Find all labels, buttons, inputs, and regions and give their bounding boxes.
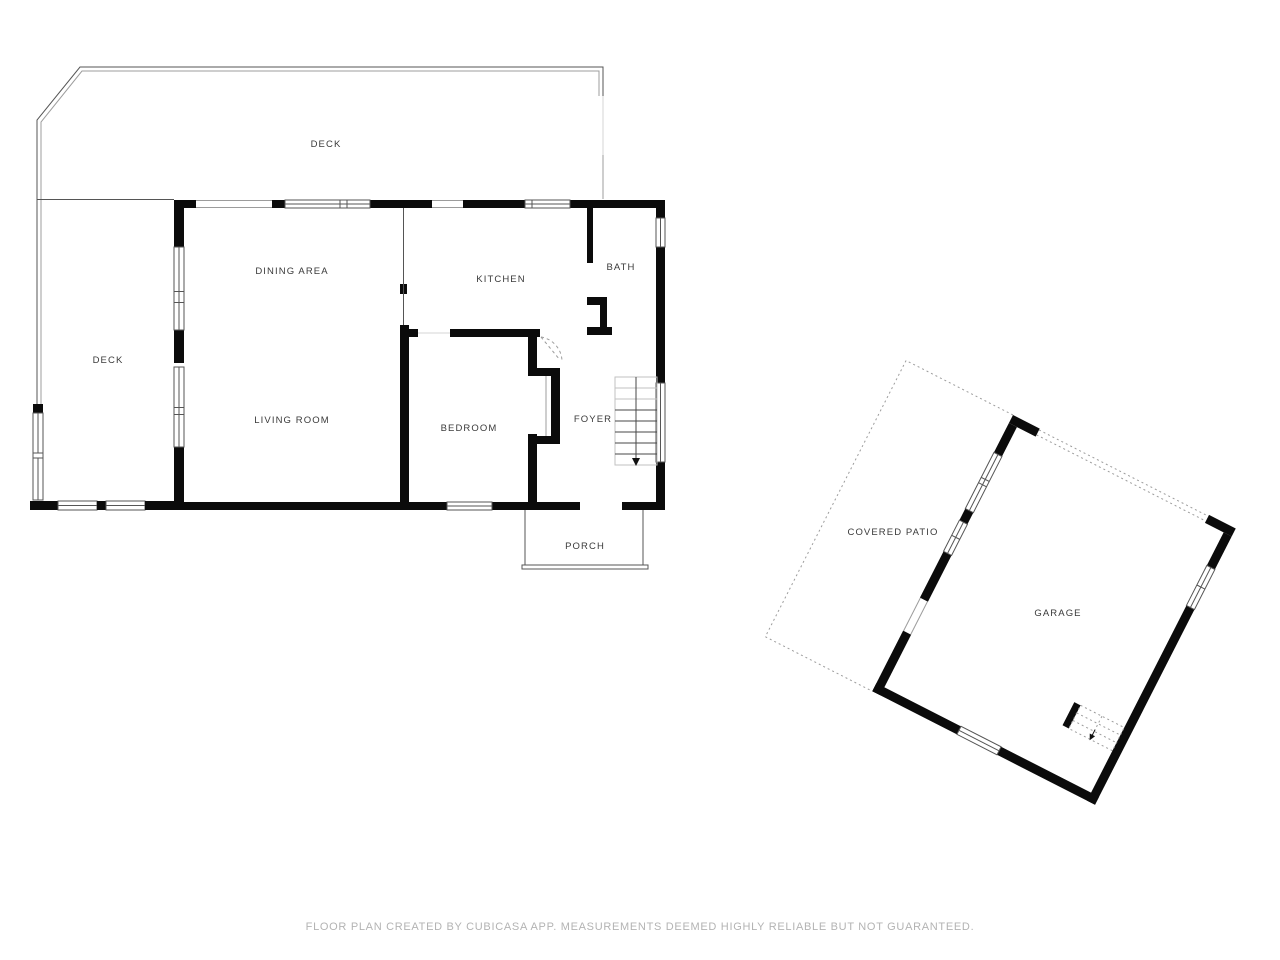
room-label-deck-left: DECK xyxy=(93,355,124,366)
wall-kitchen-bath xyxy=(587,208,593,263)
wall-segment xyxy=(656,247,665,383)
patio-edge xyxy=(765,361,1013,692)
window-garage-left-lower xyxy=(944,520,968,555)
patio-door-opening xyxy=(904,598,928,635)
window-garage-left-upper xyxy=(965,452,1002,512)
window-kitchen-top xyxy=(525,200,570,208)
foyer-stairs xyxy=(615,377,657,466)
deck-edge xyxy=(37,67,603,200)
wall-segment xyxy=(997,747,1099,805)
wall-segment xyxy=(570,200,665,208)
floor-plan-page: DECK DECK DINING AREA KITCHEN BATH LIVIN… xyxy=(0,0,1280,960)
wall-segment xyxy=(174,200,196,208)
deck-railing-left xyxy=(33,413,43,500)
wall-segment xyxy=(272,200,285,208)
wall-kitchen-bedroom xyxy=(450,329,540,337)
closet-wall xyxy=(528,436,560,444)
deck-top-outline xyxy=(37,67,603,200)
house-openings xyxy=(196,201,562,437)
wall-segment xyxy=(174,208,184,247)
window-garage-bottom xyxy=(957,726,1001,754)
window-bedroom-bottom xyxy=(447,502,492,510)
wall-segment xyxy=(174,330,184,363)
room-label-porch: PORCH xyxy=(565,541,605,552)
floor-plan-canvas: DECK DECK DINING AREA KITCHEN BATH LIVIN… xyxy=(0,0,1280,960)
main-house-walls xyxy=(174,200,665,510)
wall-segment xyxy=(463,200,525,208)
room-label-dining-area: DINING AREA xyxy=(255,266,328,277)
wall-segment xyxy=(920,551,952,601)
deck-post xyxy=(33,404,43,413)
room-label-living-room: LIVING ROOM xyxy=(254,415,329,426)
wall-stub xyxy=(409,329,418,337)
closet-wall xyxy=(551,368,560,444)
door-swing xyxy=(541,337,562,362)
porch-edge xyxy=(525,510,643,565)
porch-outline xyxy=(522,510,648,569)
garage-door-opening xyxy=(1037,430,1209,521)
room-label-covered-patio: COVERED PATIO xyxy=(847,527,938,538)
wall-segment xyxy=(1205,515,1236,537)
wall-segment xyxy=(492,502,580,510)
room-label-bedroom: BEDROOM xyxy=(441,423,498,434)
covered-patio-outline xyxy=(765,361,1013,692)
wall-segment xyxy=(872,683,961,734)
porch-step xyxy=(522,565,648,569)
window-dining-top xyxy=(285,200,370,208)
window-garage-right xyxy=(1186,565,1214,609)
wall-segment xyxy=(174,502,447,510)
room-label-deck-top: DECK xyxy=(311,139,342,150)
footer-disclaimer: FLOOR PLAN CREATED BY CUBICASA APP. MEAS… xyxy=(306,921,975,933)
room-label-garage: GARAGE xyxy=(1034,608,1081,619)
wall-segment xyxy=(1207,532,1232,569)
stair-tread xyxy=(1073,720,1117,742)
wall-segment xyxy=(1087,605,1194,804)
deck-edge-inner xyxy=(41,71,599,200)
room-label-foyer: FOYER xyxy=(574,414,612,425)
room-label-bath: BATH xyxy=(606,262,635,273)
window-dining-left xyxy=(174,247,184,330)
door-swing-leaf xyxy=(541,337,560,360)
wall-bedroom-right xyxy=(528,330,537,373)
wall-bath-bottom xyxy=(587,327,612,335)
stairs-down-arrow-icon xyxy=(1087,734,1095,742)
wall-living-bedroom xyxy=(400,325,409,502)
stair-tread xyxy=(1077,713,1121,735)
deck-railing-bottom xyxy=(30,501,175,510)
window-bath-right xyxy=(656,218,665,247)
wall-segment xyxy=(656,208,665,218)
room-label-kitchen: KITCHEN xyxy=(476,274,525,285)
garage-stairs xyxy=(1062,702,1124,751)
garage-windows xyxy=(872,452,1216,804)
window-living-left xyxy=(174,367,184,447)
wall-segment xyxy=(370,200,432,208)
wall-segment xyxy=(174,447,184,510)
stair-side-wall xyxy=(1063,702,1081,728)
stair-arrow-shaft xyxy=(1092,730,1095,736)
wall-segment xyxy=(656,462,665,510)
wall-bedroom-right xyxy=(528,434,537,502)
wall-segment xyxy=(994,423,1017,456)
